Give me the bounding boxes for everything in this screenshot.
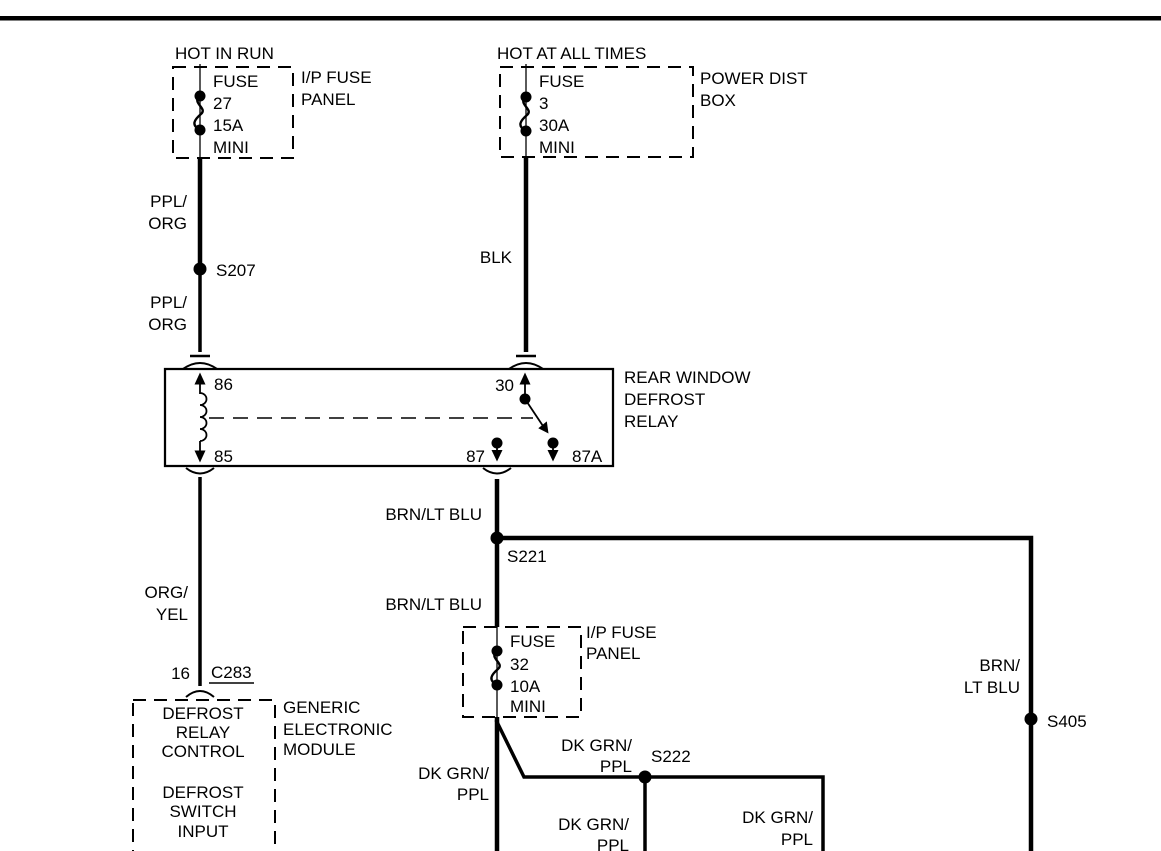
wire-color-label: PPL	[781, 830, 813, 849]
wire-color-label: DK GRN/	[561, 736, 632, 755]
arrow-down-icon	[195, 451, 206, 463]
wire-segment	[496, 720, 823, 851]
connector-id: C283	[211, 663, 252, 682]
wire-color-label: BRN/LT BLU	[385, 505, 482, 524]
arrow-up-icon	[520, 373, 531, 385]
wire-color-label: ORG/	[145, 583, 189, 602]
panel-label-line2: PANEL	[586, 644, 641, 663]
panel-label-line1: POWER DIST	[700, 69, 808, 88]
wire-brn-ltblu-right: BRN/ LT BLU S405	[964, 656, 1087, 731]
relay-name-line3: RELAY	[624, 412, 679, 431]
fuse-size: MINI	[539, 138, 575, 157]
panel-label-line2: BOX	[700, 91, 736, 110]
connector-socket-icon	[186, 468, 214, 474]
contact-dot	[548, 438, 559, 449]
fuse-number: 27	[213, 94, 232, 113]
splice-dot	[194, 263, 207, 276]
splice-label: S222	[651, 747, 691, 766]
wire-color-label: ORG	[148, 315, 187, 334]
supply-label: HOT AT ALL TIMES	[497, 44, 646, 63]
gem-function2-line1: DEFROST	[162, 783, 243, 802]
fuse-number: 3	[539, 94, 548, 113]
wire-segment	[503, 538, 1031, 851]
arrow-down-icon	[548, 450, 559, 462]
wire-blk: BLK	[480, 157, 543, 369]
wire-color-label: ORG	[148, 214, 187, 233]
wire-color-label: YEL	[156, 605, 188, 624]
wire-color-label: DK GRN/	[742, 808, 813, 827]
splice-label: S221	[507, 547, 547, 566]
wire-color-label: PPL	[597, 836, 629, 851]
wire-color-label: BRN/	[979, 656, 1020, 675]
panel-label-line2: PANEL	[301, 90, 356, 109]
wire-color-label: PPL/	[150, 293, 187, 312]
fuse-3-block: HOT AT ALL TIMES FUSE 3 30A MINI POWER D…	[497, 44, 808, 157]
coil-icon	[200, 393, 207, 441]
fuse-name: FUSE	[510, 632, 555, 651]
fuse-32-block: FUSE 32 10A MINI I/P FUSE PANEL	[463, 623, 657, 717]
panel-label-line1: I/P FUSE	[301, 68, 372, 87]
connector-socket-icon	[186, 691, 214, 697]
relay-pin-86: 86	[214, 375, 233, 394]
fuse-rating: 30A	[539, 116, 570, 135]
wire-color-label: DK GRN/	[558, 815, 629, 834]
contact-dot	[492, 438, 503, 449]
top-rule	[0, 16, 1161, 21]
relay-pin-30: 30	[495, 376, 514, 395]
splice-dot	[491, 532, 504, 545]
switch-arm	[525, 399, 543, 426]
supply-label: HOT IN RUN	[175, 44, 274, 63]
arrow-icon	[538, 421, 548, 433]
relay-name-line1: REAR WINDOW	[624, 368, 751, 387]
wire-org-yel: ORG/ YEL 16 C283	[145, 477, 254, 697]
relay-name-line2: DEFROST	[624, 390, 705, 409]
splice-dot	[1025, 713, 1038, 726]
fuse-rating: 15A	[213, 116, 244, 135]
fuse-27-block: HOT IN RUN FUSE 27 15A MINI I/P FUSE PAN…	[173, 44, 372, 158]
wire-ppl-org: PPL/ ORG S207 PPL/ ORG	[148, 158, 255, 369]
splice-label: S405	[1047, 712, 1087, 731]
wire-color-label: PPL	[457, 785, 489, 804]
fuse-name: FUSE	[539, 72, 584, 91]
gem-block: DEFROST RELAY CONTROL DEFROST SWITCH INP…	[133, 698, 393, 851]
gem-function2-line2: SWITCH	[169, 802, 236, 821]
wire-color-label: DK GRN/	[418, 764, 489, 783]
gem-function1-line1: DEFROST	[162, 704, 243, 723]
connector-socket-icon	[483, 468, 511, 474]
fuse-size: MINI	[510, 697, 546, 716]
wire-color-label: BLK	[480, 248, 513, 267]
relay-block: 86 85 30 87A 87 REAR WINDOW DEFROST RELA…	[165, 368, 751, 474]
gem-name-line3: MODULE	[283, 740, 356, 759]
wire-dkgrn-ppl: DK GRN/ PPL DK GRN/ PPL S222 DK GRN/ PPL…	[418, 717, 823, 851]
gem-name-line2: ELECTRONIC	[283, 720, 393, 739]
panel-label-line1: I/P FUSE	[586, 623, 657, 642]
splice-label: S207	[216, 261, 256, 280]
relay-pin-85: 85	[214, 447, 233, 466]
fuse-number: 32	[510, 655, 529, 674]
wiring-diagram-page: HOT IN RUN FUSE 27 15A MINI I/P FUSE PAN…	[0, 0, 1161, 851]
wire-color-label: PPL	[600, 757, 632, 776]
arrow-up-icon	[195, 373, 206, 385]
gem-function2-line3: INPUT	[178, 822, 229, 841]
fuse-size: MINI	[213, 138, 249, 157]
wiring-diagram: HOT IN RUN FUSE 27 15A MINI I/P FUSE PAN…	[0, 0, 1161, 851]
arrow-down-icon	[492, 450, 503, 462]
gem-name-line1: GENERIC	[283, 698, 360, 717]
wire-color-label: LT BLU	[964, 678, 1020, 697]
connector-pin-number: 16	[171, 664, 190, 683]
fuse-name: FUSE	[213, 72, 258, 91]
gem-function1-line3: CONTROL	[161, 742, 244, 761]
relay-pin-87: 87	[466, 447, 485, 466]
wire-color-label: PPL/	[150, 192, 187, 211]
wire-color-label: BRN/LT BLU	[385, 595, 482, 614]
fuse-rating: 10A	[510, 677, 541, 696]
gem-function1-line2: RELAY	[176, 723, 231, 742]
relay-pin-87a: 87A	[572, 447, 603, 466]
